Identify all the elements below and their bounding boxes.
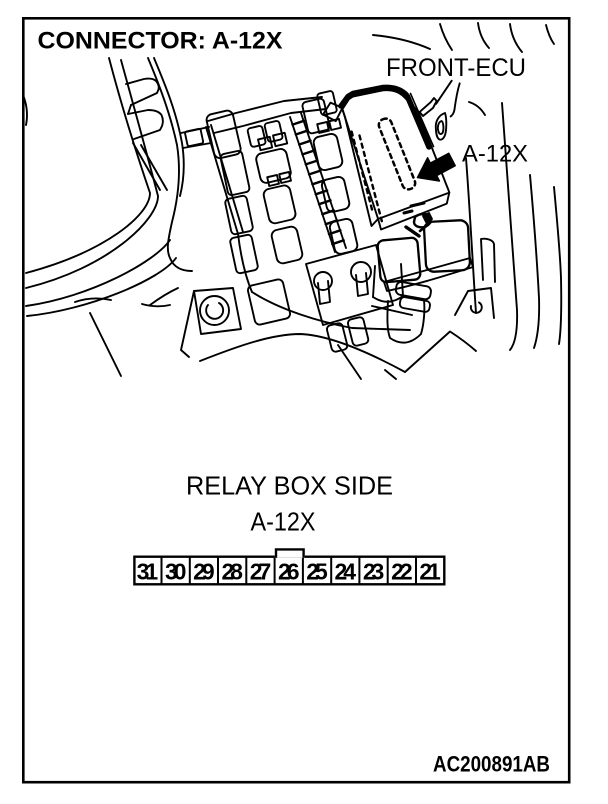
svg-text:26: 26 <box>278 559 300 585</box>
svg-text:29: 29 <box>193 559 215 585</box>
svg-text:A-12X: A-12X <box>462 141 528 168</box>
svg-text:23: 23 <box>363 559 385 585</box>
svg-text:27: 27 <box>250 559 272 585</box>
svg-text:AC200891AB: AC200891AB <box>433 752 550 777</box>
svg-text:28: 28 <box>221 559 243 585</box>
svg-text:FRONT-ECU: FRONT-ECU <box>386 54 526 82</box>
svg-text:25: 25 <box>306 559 328 585</box>
svg-text:RELAY BOX SIDE: RELAY BOX SIDE <box>186 471 393 501</box>
svg-text:22: 22 <box>391 559 413 585</box>
svg-text:24: 24 <box>335 559 357 585</box>
svg-text:31: 31 <box>137 559 159 585</box>
svg-text:21: 21 <box>419 559 441 585</box>
svg-text:30: 30 <box>165 559 187 585</box>
svg-text:A-12X: A-12X <box>251 507 316 537</box>
svg-text:CONNECTOR: A-12X: CONNECTOR: A-12X <box>38 28 283 55</box>
